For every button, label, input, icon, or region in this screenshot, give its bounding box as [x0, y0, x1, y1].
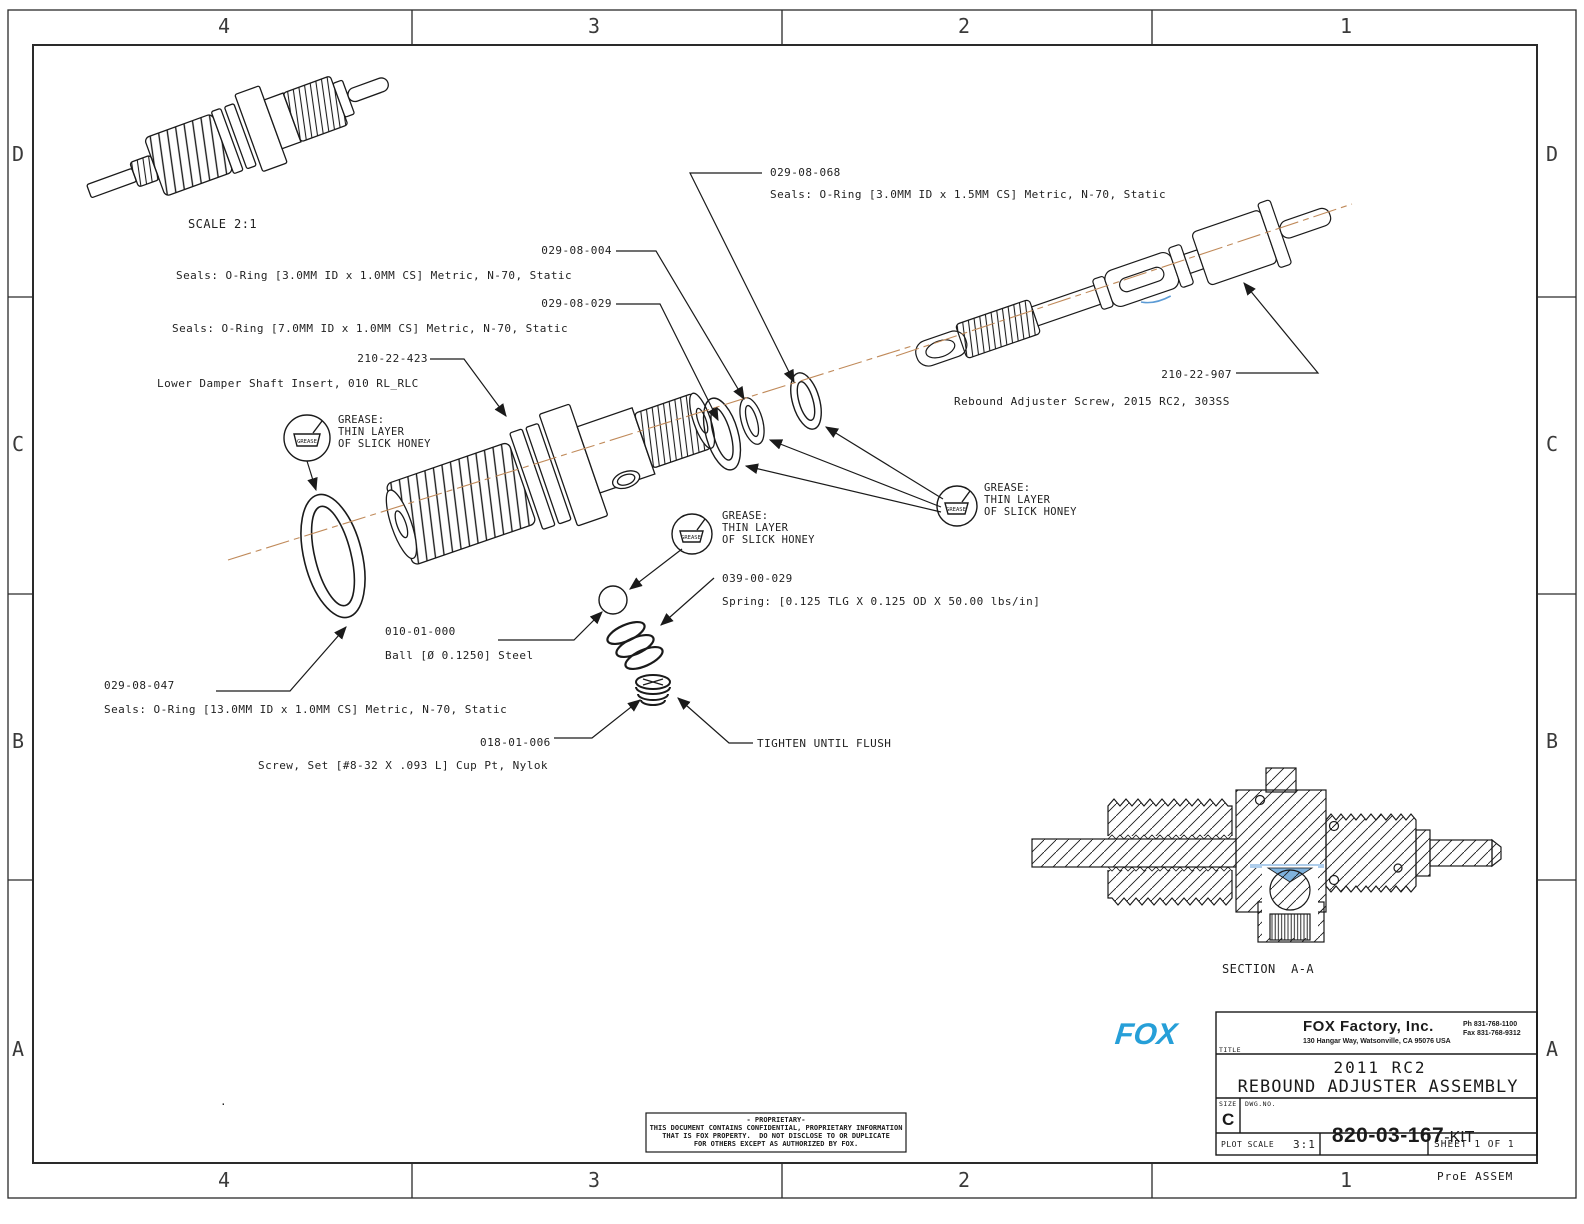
zone-col-1-top: 1 [1340, 14, 1352, 38]
svg-text:GREASE: GREASE [946, 507, 966, 513]
company-fax: Fax 831-768-9312 [1463, 1030, 1521, 1037]
zone-col-1-bottom: 1 [1340, 1168, 1352, 1192]
rebound-adjuster-screw [906, 183, 1341, 390]
grease-note-3-l2: THIN LAYER [984, 494, 1050, 506]
callout-907-desc: Rebound Adjuster Screw, 2015 RC2, 303SS [954, 396, 1230, 408]
size-label: SIZE [1219, 1100, 1237, 1108]
grease-symbol-2 [672, 514, 712, 554]
fox-logo: FOX [1114, 1018, 1296, 1051]
callout-907-pn: 210-22-907 [1152, 369, 1232, 381]
grease-note-2-l3: OF SLICK HONEY [722, 534, 815, 546]
title-label: TITLE [1219, 1046, 1241, 1054]
grease-note-2-l2: THIN LAYER [722, 522, 788, 534]
o-ring-small-2 [735, 395, 768, 447]
sheet-number: SHEET 1 OF 1 [1434, 1139, 1515, 1150]
set-screw [636, 675, 670, 705]
callout-423-pn: 210-22-423 [348, 353, 428, 365]
zone-row-a-right: A [1546, 1037, 1558, 1061]
callout-018-pn: 018-01-006 [480, 737, 551, 749]
plot-environment-note: ProE ASSEM [1437, 1170, 1513, 1183]
callout-047-pn: 029-08-047 [104, 680, 175, 692]
company-name: FOX Factory, Inc. [1303, 1018, 1434, 1035]
proprietary-line2: THIS DOCUMENT CONTAINS CONFIDENTIAL, PRO… [646, 1124, 906, 1132]
proprietary-line3: THAT IS FOX PROPERTY. DO NOT DISCLOSE TO… [646, 1132, 906, 1140]
grease-note-3-l3: OF SLICK HONEY [984, 506, 1077, 518]
grease-symbol-3 [937, 486, 977, 526]
plot-scale-label: PLOT SCALE [1221, 1140, 1274, 1149]
callout-018-desc: Screw, Set [#8-32 X .093 L] Cup Pt, Nylo… [258, 760, 548, 772]
company-address: 130 Hangar Way, Watsonville, CA 95076 US… [1303, 1038, 1451, 1045]
zone-col-4-bottom: 4 [218, 1168, 230, 1192]
company-phone: Ph 831-768-1100 [1463, 1021, 1517, 1028]
callout-029-pn: 029-08-029 [532, 298, 612, 310]
stray-dot: . [220, 1096, 227, 1108]
steel-ball [599, 586, 627, 614]
svg-text:GREASE: GREASE [297, 439, 317, 445]
grease-symbol-1 [284, 415, 330, 461]
zone-col-2-top: 2 [958, 14, 970, 38]
zone-row-a-left: A [12, 1037, 24, 1061]
svg-text:FOX: FOX [1114, 1018, 1181, 1051]
o-ring-large [290, 488, 377, 624]
drawing-sheet: GREASE GREASE GREASE [0, 0, 1584, 1224]
damper-shaft-insert-body [373, 362, 730, 583]
proprietary-line4: FOR OTHERS EXCEPT AS AUTHORIZED BY FOX. [646, 1140, 906, 1148]
tighten-note: TIGHTEN UNTIL FLUSH [757, 738, 891, 750]
callout-004-desc: Seals: O-Ring [3.0MM ID x 1.0MM CS] Metr… [176, 270, 572, 282]
callout-039-desc: Spring: [0.125 TLG X 0.125 OD X 50.00 lb… [722, 596, 1040, 608]
section-label: SECTION A-A [1222, 963, 1314, 975]
callout-004-pn: 029-08-004 [532, 245, 612, 257]
callout-039-pn: 039-00-029 [722, 573, 793, 585]
callout-068-desc: Seals: O-Ring [3.0MM ID x 1.5MM CS] Metr… [770, 189, 1166, 201]
drawing-title-line1: 2011 RC2 [1240, 1058, 1520, 1077]
callout-047-desc: Seals: O-Ring [13.0MM ID x 1.0MM CS] Met… [104, 704, 507, 716]
grease-note-1-l2: THIN LAYER [338, 426, 404, 438]
zone-col-3-top: 3 [588, 14, 600, 38]
zone-row-c-right: C [1546, 432, 1558, 456]
grease-note-1-l3: OF SLICK HONEY [338, 438, 431, 450]
callout-029-desc: Seals: O-Ring [7.0MM ID x 1.0MM CS] Metr… [172, 323, 568, 335]
grease-note-2-l1: GREASE: [722, 510, 768, 522]
size-value: C [1222, 1110, 1234, 1130]
callout-010-desc: Ball [Ø 0.1250] Steel [385, 650, 534, 662]
assembled-view [75, 44, 402, 230]
zone-col-4-top: 4 [218, 14, 230, 38]
plot-scale-value: 3:1 [1293, 1138, 1316, 1151]
callout-010-pn: 010-01-000 [385, 626, 456, 638]
assembled-scale-label: SCALE 2:1 [188, 218, 257, 230]
callout-068-pn: 029-08-068 [770, 167, 841, 179]
zone-row-b-left: B [12, 729, 24, 753]
zone-row-b-right: B [1546, 729, 1558, 753]
drawing-title-line2: REBOUND ADJUSTER ASSEMBLY [1222, 1077, 1534, 1097]
grease-note-3-l1: GREASE: [984, 482, 1030, 494]
section-view [1032, 768, 1501, 942]
zone-row-d-right: D [1546, 142, 1558, 166]
zone-col-2-bottom: 2 [958, 1168, 970, 1192]
dwg-no-main: 820-03-167 [1332, 1124, 1444, 1147]
zone-row-d-left: D [12, 142, 24, 166]
proprietary-line1: - PROPRIETARY- [646, 1116, 906, 1124]
grease-note-1-l1: GREASE: [338, 414, 384, 426]
zone-row-c-left: C [12, 432, 24, 456]
callout-423-desc: Lower Damper Shaft Insert, 010 RL_RLC [157, 378, 419, 390]
zone-col-3-bottom: 3 [588, 1168, 600, 1192]
spring [604, 618, 665, 674]
svg-text:GREASE: GREASE [681, 535, 701, 541]
